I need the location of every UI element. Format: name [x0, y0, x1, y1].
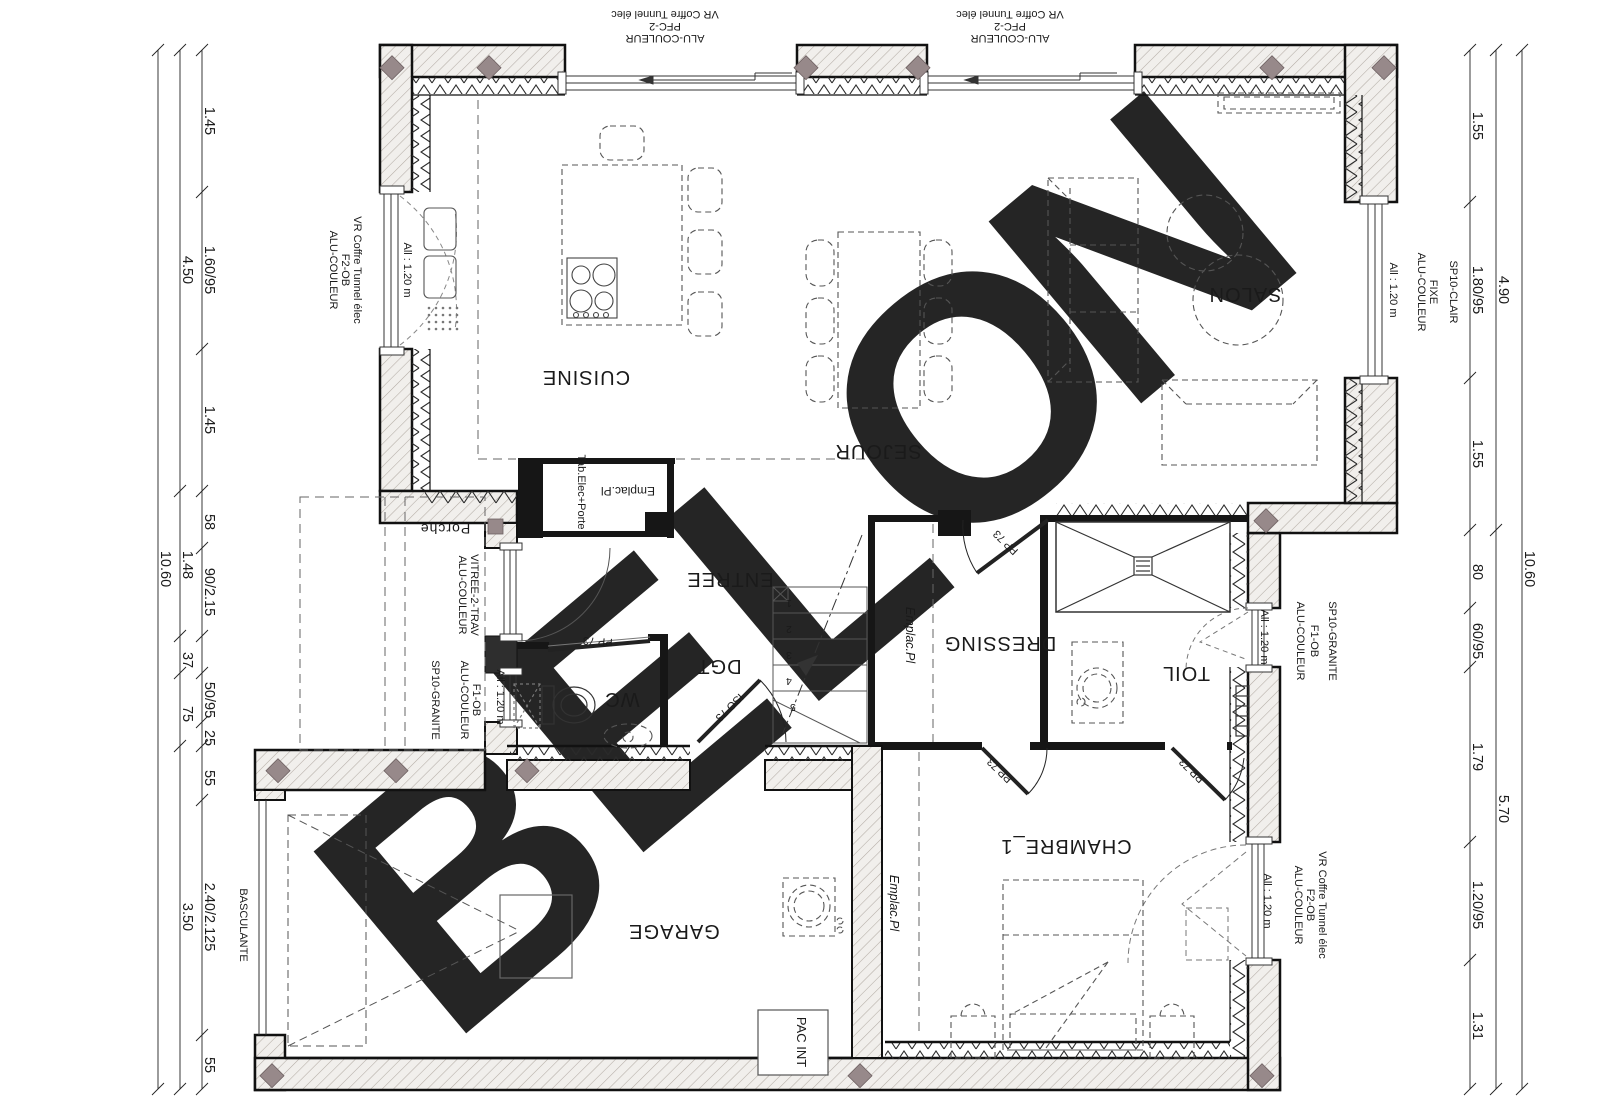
dim-value: 1.45	[201, 107, 217, 135]
room-label-toil: TOIL	[1162, 662, 1210, 684]
dim-value: 1.45	[201, 406, 217, 434]
dim-value: 1.55	[1469, 112, 1485, 140]
room-label-porche: Porche	[420, 521, 470, 537]
room-label-chambre1: CHAMBRE_1	[1000, 835, 1131, 857]
label-emplac-chambre: Emplac.Pl	[887, 875, 901, 932]
dim-value: 5.70	[1495, 795, 1511, 823]
dim-value: 55	[201, 770, 217, 786]
dim-value: 90/2.15	[201, 568, 217, 616]
annotation: F2-OB	[1304, 889, 1316, 921]
room-label-salon: SALON	[1209, 283, 1282, 305]
annotation: VR Coffre Tunnel élec	[351, 216, 363, 324]
annotation: SP10-GRANITE	[1326, 601, 1338, 680]
stair-step: 4	[786, 675, 792, 687]
room-label-cuisine: CUISINE	[542, 366, 630, 388]
door-label-wc: PP 73	[583, 634, 614, 648]
room-label-dressing: DRESSING	[944, 632, 1056, 654]
dim-value: 4.90	[1495, 276, 1511, 304]
dim-value: 3.50	[179, 903, 195, 931]
left-dimensions: 1.45 1.60/95 1.45 58 90/2.15 50/95 25 55…	[157, 107, 217, 1073]
top-annotations: VR Coffre Tunnel élec PFC-2 ALU-COULEUR …	[611, 8, 1064, 44]
dim-value: 1.80/95	[1469, 266, 1485, 314]
dim-value: 58	[201, 514, 217, 530]
label-emplac-dressing: Emplac.Pl	[903, 607, 917, 664]
annotation: ALU-COULEUR	[971, 32, 1050, 44]
annotation: ALU-COULEUR	[456, 556, 468, 635]
label-tab-elec: Tab.Elec+Porte	[575, 455, 587, 530]
room-label-garage: GARAGE	[628, 920, 720, 942]
room-label-sejour: SEJOUR	[834, 440, 921, 462]
dim-value: 37	[179, 652, 195, 668]
allege-note: All : 1.20 m	[1258, 609, 1270, 664]
stair-step: 2	[786, 623, 792, 635]
annotation: ALU-COULEUR	[327, 231, 339, 310]
dim-value: 2.40/2.125	[201, 883, 217, 952]
dim-value: 25	[201, 730, 217, 746]
annotation-basculante: BASCULANTE	[237, 888, 249, 961]
dim-value: 1.48	[179, 551, 195, 579]
annotation: ALU-COULEUR	[1415, 253, 1427, 332]
room-label-entree: ENTREE	[686, 568, 773, 590]
annotation: SP10-CLAIR	[1447, 261, 1459, 324]
dim-value: 50/95	[201, 682, 217, 718]
annotation: VR Coffre Tunnel élec	[611, 8, 719, 20]
annotation: SP10-GRANITE	[429, 660, 441, 739]
annotation: ALU-COULEUR	[1292, 866, 1304, 945]
dim-value: 1.60/95	[201, 246, 217, 294]
dim-value: 1.31	[1469, 1012, 1485, 1040]
dim-value: 80	[1469, 564, 1485, 580]
dim-value: 10.60	[157, 551, 173, 587]
dim-value: 75	[179, 706, 195, 722]
room-label-dgt: DGT	[696, 655, 741, 677]
annotation: VR Coffre Tunnel élec	[956, 8, 1064, 20]
stair-step: 3	[786, 649, 792, 661]
dim-value: 1.79	[1469, 743, 1485, 771]
annotation: ALU-COULEUR	[1294, 602, 1306, 681]
right-dimensions: 1.55 1.80/95 1.55 80 60/95 1.79 1.20/95 …	[1469, 112, 1537, 1040]
allege-note: All : 1.20 m	[401, 242, 413, 297]
dim-value: 1.20/95	[1469, 881, 1485, 929]
floor-plan-page: B E L O N	[0, 0, 1600, 1109]
annotation: ALU-COULEUR	[626, 32, 705, 44]
annotation: F1-OB	[1308, 625, 1320, 657]
dim-value: 1.55	[1469, 440, 1485, 468]
annotation: F1-OB	[470, 684, 482, 716]
room-label-wc: WC	[604, 688, 639, 710]
annotation: VR Coffre Tunnel élec	[1316, 851, 1328, 959]
dim-value: 4.50	[179, 256, 195, 284]
annotation: PFC-2	[649, 20, 681, 32]
door-label-toil: PP 73	[1177, 755, 1207, 784]
annotation: PFC-2	[994, 20, 1026, 32]
annotation: ALU-COULEUR	[458, 661, 470, 740]
label-pac-int: PAC INT	[794, 1017, 809, 1067]
allege-note: All : 1.20 m	[1387, 262, 1399, 317]
floor-plan-drawing: B E L O N	[0, 0, 1600, 1109]
label-emplac-closet: Emplac.Pl	[601, 484, 655, 498]
dim-value: 60/95	[1469, 623, 1485, 659]
annotation: F2-OB	[339, 254, 351, 286]
dim-value: 55	[201, 1057, 217, 1073]
door-label-chambre: PP 73	[985, 755, 1015, 784]
dim-value: 10.60	[1521, 551, 1537, 587]
allege-note: All : 1.20 m	[494, 669, 506, 724]
stair-step: 1	[786, 597, 792, 609]
annotation: VITREE-2-TRAV	[468, 554, 480, 636]
annotation: FIXE	[1427, 280, 1439, 304]
allege-note: All : 1.20 m	[1261, 873, 1273, 928]
stair-step: 5	[790, 701, 796, 713]
